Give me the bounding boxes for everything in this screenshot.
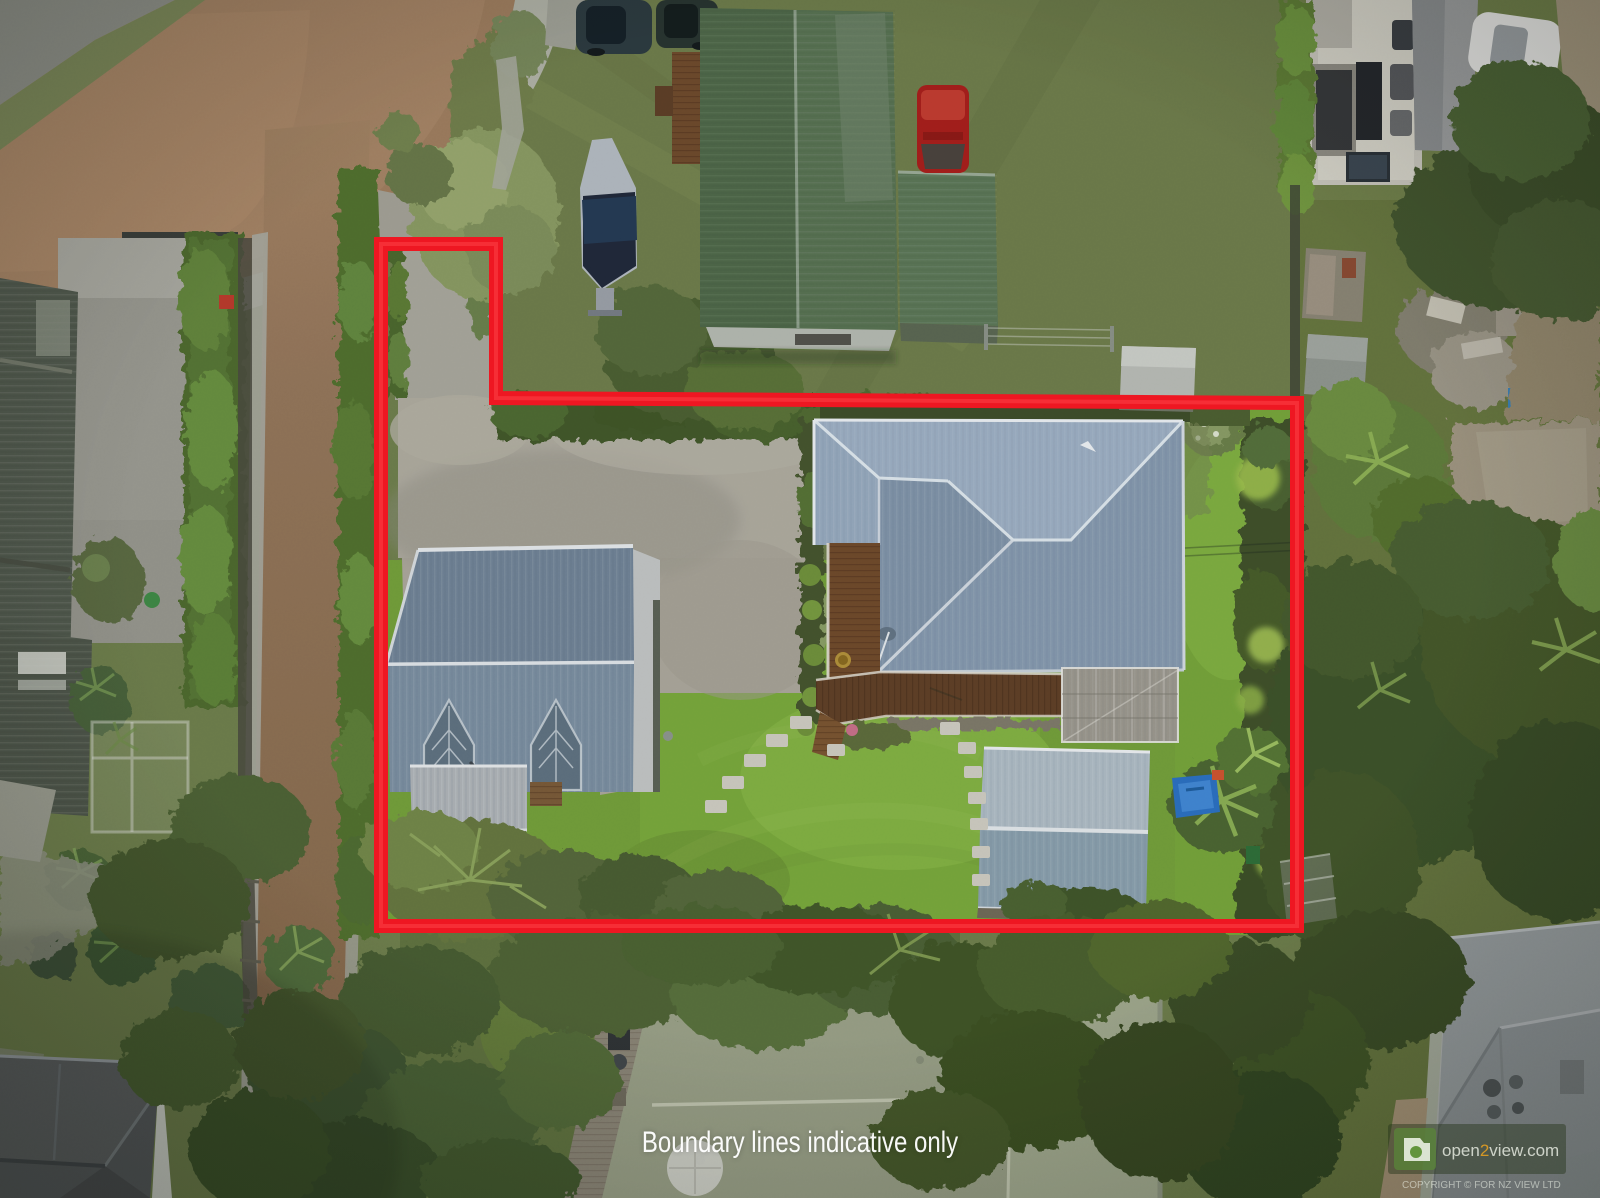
svg-text:COPYRIGHT © FOR NZ VIEW LTD: COPYRIGHT © FOR NZ VIEW LTD	[1402, 1180, 1561, 1191]
svg-text:open2view.com: open2view.com	[1442, 1141, 1559, 1160]
